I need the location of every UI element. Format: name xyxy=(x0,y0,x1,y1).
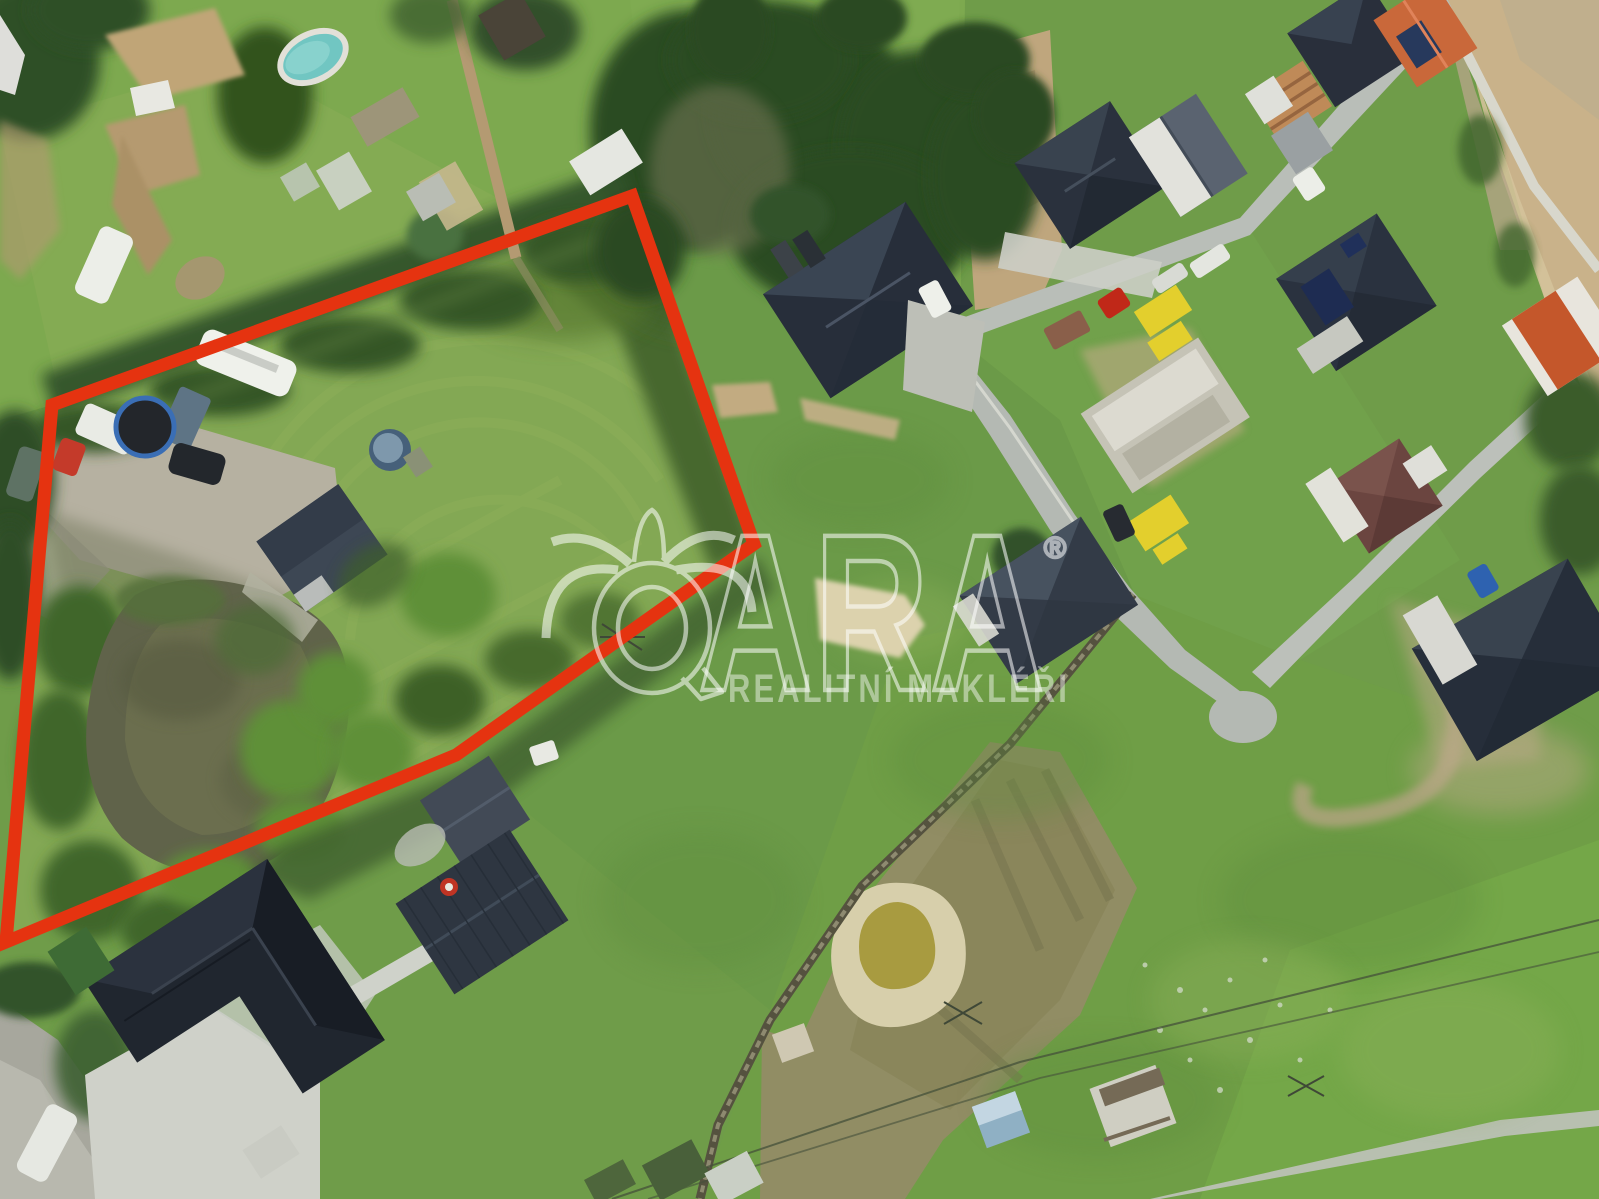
svg-text:®: ® xyxy=(1044,532,1066,565)
svg-text:REALITNÍ MAKLÉŘI: REALITNÍ MAKLÉŘI xyxy=(728,665,1070,711)
